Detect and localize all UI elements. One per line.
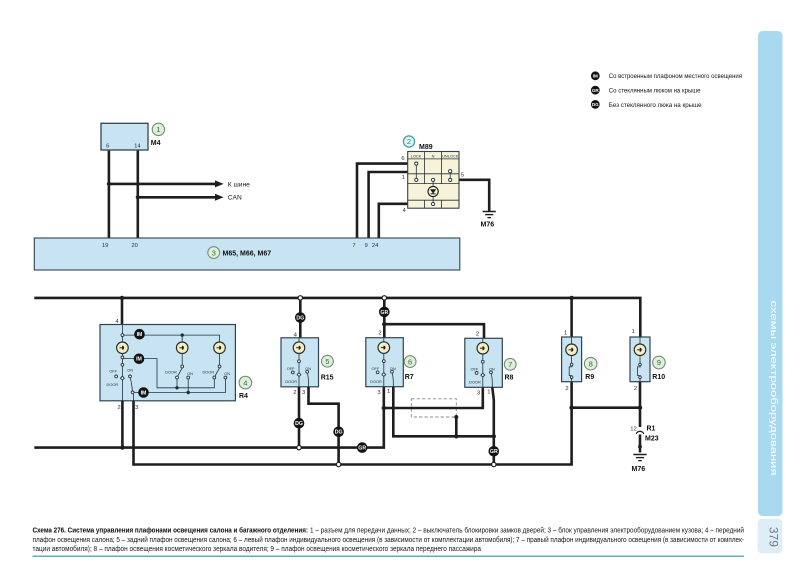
svg-text:ON: ON [224, 371, 230, 376]
svg-text:IM: IM [141, 390, 147, 396]
svg-text:2: 2 [565, 386, 568, 392]
svg-text:2: 2 [476, 331, 479, 337]
svg-text:DOOR: DOOR [107, 382, 119, 387]
svg-text:4: 4 [243, 378, 247, 387]
svg-text:1: 1 [632, 329, 635, 335]
svg-text:2: 2 [293, 390, 296, 396]
svg-text:ON: ON [187, 371, 193, 376]
svg-text:M76: M76 [632, 466, 646, 473]
svg-text:1 – разъем для передачи данных: 1 – разъем для передачи данных; 2 – выкл… [310, 527, 744, 535]
svg-text:UNLOCK: UNLOCK [442, 153, 459, 158]
svg-text:DOOR: DOOR [202, 370, 214, 375]
svg-text:3: 3 [212, 248, 216, 257]
svg-text:DG: DG [592, 102, 599, 107]
svg-text:7: 7 [352, 243, 355, 249]
svg-text:5: 5 [325, 357, 329, 366]
svg-text:M76: M76 [481, 222, 495, 229]
svg-text:19: 19 [102, 243, 109, 249]
svg-text:M23: M23 [645, 435, 659, 442]
svg-text:DOOR: DOOR [165, 370, 177, 375]
svg-text:M4: M4 [151, 140, 161, 147]
svg-text:схемы электрооборудования: схемы электрооборудования [768, 301, 779, 476]
svg-text:R1: R1 [647, 426, 656, 433]
svg-text:2: 2 [634, 386, 637, 392]
svg-text:R8: R8 [505, 375, 514, 382]
svg-text:CAN: CAN [228, 195, 242, 202]
svg-text:DG: DG [296, 315, 304, 321]
svg-text:GR: GR [358, 446, 366, 452]
svg-text:OFF: OFF [109, 368, 117, 373]
svg-text:7: 7 [508, 360, 512, 369]
svg-text:R4: R4 [239, 393, 248, 400]
svg-text:IM: IM [136, 357, 142, 363]
svg-text:Со встроенным плафоном местног: Со встроенным плафоном местного освещени… [609, 73, 743, 80]
svg-text:GR: GR [380, 310, 388, 316]
svg-text:1: 1 [156, 125, 160, 134]
svg-text:12: 12 [630, 426, 637, 432]
svg-text:DG: DG [335, 430, 343, 436]
svg-text:1: 1 [387, 389, 390, 395]
svg-text:6: 6 [408, 357, 412, 366]
svg-text:R10: R10 [652, 374, 665, 381]
svg-text:1: 1 [564, 330, 567, 336]
svg-text:Схема 276. Система управления: Схема 276. Система управления плафонами … [33, 527, 309, 535]
svg-text:14: 14 [134, 144, 141, 150]
svg-text:24: 24 [372, 243, 379, 249]
svg-text:ON: ON [127, 368, 133, 373]
svg-text:9: 9 [657, 358, 661, 367]
svg-text:2: 2 [378, 330, 381, 336]
svg-text:1: 1 [402, 175, 405, 181]
svg-text:плафон освещения салона; 5 – з: плафон освещения салона; 5 – задний плаф… [33, 536, 745, 544]
svg-text:IM: IM [137, 332, 143, 338]
svg-text:9: 9 [365, 243, 368, 249]
svg-text:M65, M66, M67: M65, M66, M67 [223, 250, 272, 257]
svg-text:Со стеклянным люком на крыше: Со стеклянным люком на крыше [609, 88, 701, 95]
svg-text:GR: GR [490, 449, 498, 455]
svg-text:GR: GR [592, 88, 600, 93]
svg-text:К шине: К шине [228, 181, 250, 188]
svg-text:R7: R7 [405, 374, 414, 381]
svg-text:N: N [432, 153, 435, 158]
svg-text:тации автомобиля); 8 – плафон: тации автомобиля); 8 – плафон освещения … [33, 545, 482, 553]
svg-text:M89: M89 [419, 144, 433, 151]
svg-text:2: 2 [407, 137, 411, 146]
svg-text:DG: DG [295, 421, 303, 427]
svg-text:Без стеклянного люка на крыше: Без стеклянного люка на крыше [609, 102, 702, 109]
svg-text:2: 2 [117, 405, 120, 411]
svg-text:1: 1 [487, 390, 490, 396]
svg-text:379: 379 [767, 527, 781, 547]
svg-text:R9: R9 [585, 374, 594, 381]
svg-text:8: 8 [589, 359, 593, 368]
svg-text:LOCK: LOCK [411, 153, 422, 158]
svg-text:R15: R15 [321, 374, 334, 381]
svg-text:IM: IM [593, 74, 598, 79]
svg-text:20: 20 [131, 243, 138, 249]
